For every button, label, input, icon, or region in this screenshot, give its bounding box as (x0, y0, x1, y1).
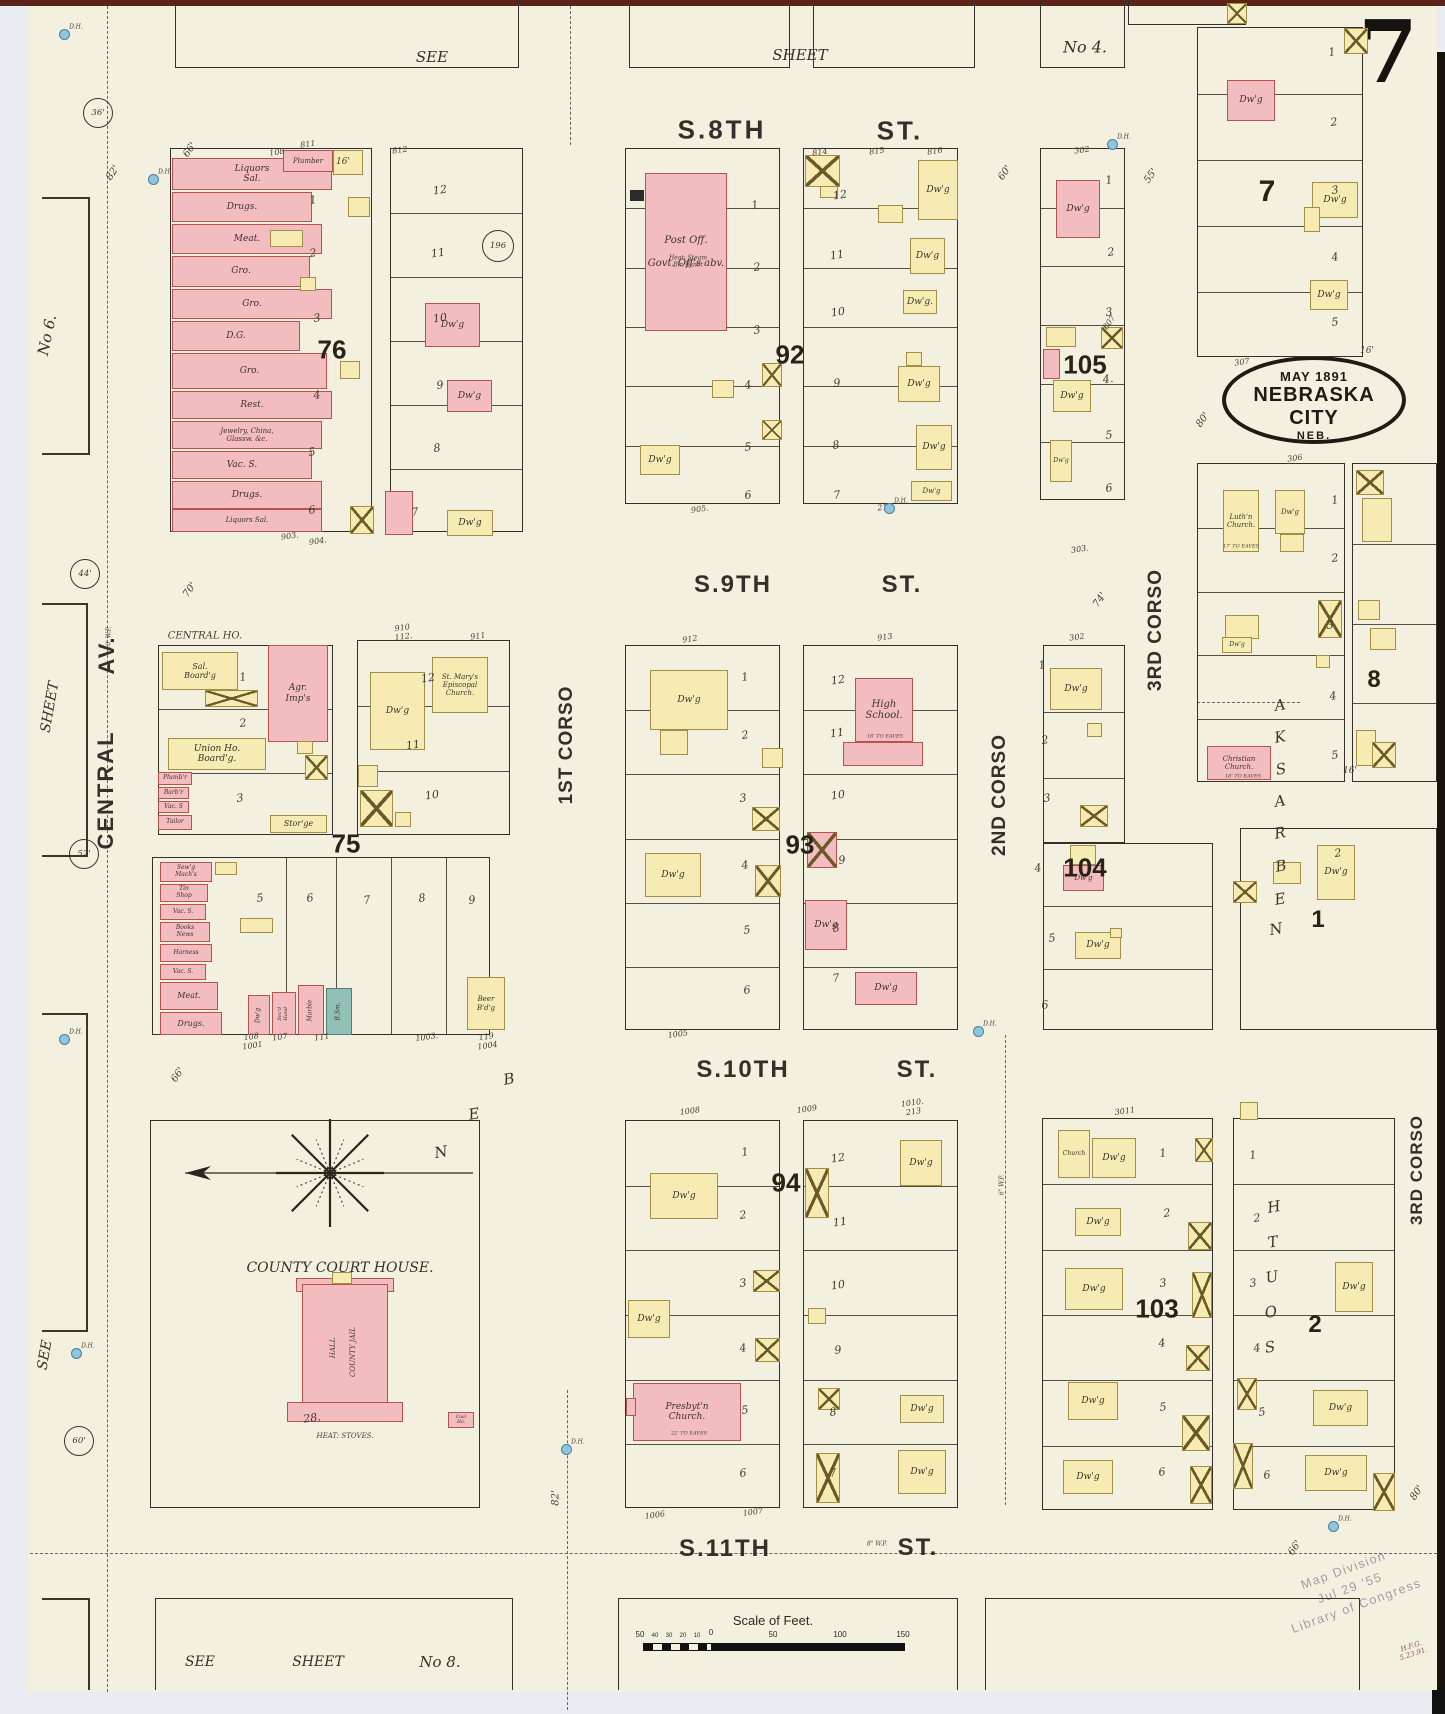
double-hydrant-label: D.H. (69, 25, 83, 32)
lot-line (1044, 969, 1212, 970)
building-label: Liquors Sal. (235, 164, 270, 185)
circled-dimension: 36' (83, 98, 113, 128)
building-label: Meat. (177, 991, 200, 1000)
building-shed (270, 230, 303, 247)
margin-block-line (42, 197, 88, 199)
building-jewelrychinaglasswc: Jewelry, China, Glassw. &c. (172, 421, 322, 449)
building-shed (240, 918, 273, 933)
sanborn-map-sheet: 7 MAY 1891 NEBRASKA CITY NEB. Map Divisi… (0, 0, 1445, 1714)
building-dwg: Dw'g (1063, 1460, 1113, 1494)
lot-number: 11 (405, 738, 421, 753)
building-label: Drugs. (232, 490, 263, 500)
building-dwg: Dw'g (898, 366, 940, 402)
street-label-see: SEE (185, 1654, 215, 1670)
street-label-see: SEE (416, 48, 448, 66)
annotation-6wp: 6" W.P. (1000, 1175, 1007, 1195)
annotation-16toeaves: 16' TO EAVES (867, 734, 903, 740)
building-dwg: Dw'g (1075, 1208, 1121, 1236)
double-hydrant-label: D.H. (894, 499, 908, 506)
annotation-heatstoves: HEAT: STOVES. (317, 1433, 374, 1441)
building-dwg: Dw'g (900, 1140, 942, 1186)
building-shed (1373, 1473, 1395, 1511)
building-label: Dw'g (1239, 95, 1262, 105)
lot-line (626, 903, 779, 904)
building-label: Dw'g (1086, 940, 1109, 950)
street-label-3rdcorso: 3RD CORSO (1145, 569, 1167, 691)
lot-line (391, 277, 522, 278)
street-label-st: ST. (877, 116, 924, 147)
building-liquorssal: Liquors Sal. (172, 509, 322, 532)
building-label: Gro. (242, 299, 262, 309)
lot-line (391, 213, 522, 214)
building-shed (1080, 805, 1108, 827)
street-label-s11th: S.11TH (679, 1535, 771, 1563)
building-stmarysepiscopalchurch: St. Mary's Episcopal Church. (432, 657, 488, 713)
building-label: Dw'g (874, 983, 897, 993)
building-label: Dw'g (916, 251, 939, 261)
building-label: Liquors Sal. (226, 516, 269, 524)
annotation-910112: 910 112. (393, 623, 413, 643)
building-label: Vac. S. (227, 460, 258, 470)
building-dwg: Dw'g (1053, 380, 1091, 412)
building-shed (1304, 207, 1320, 232)
building-label: Tailor (166, 819, 183, 826)
building-label: Marble (308, 999, 315, 1021)
building-label: St. Mary's Episcopal Church. (442, 673, 478, 697)
building-label: Dw'g (1066, 204, 1089, 214)
building-shed (360, 790, 393, 827)
building-shed (1195, 1138, 1213, 1162)
building-shed (358, 765, 378, 787)
annotation-heatsteamblr: Heat: Steam Blr. Bsm't (669, 255, 707, 268)
building-shed (1188, 1222, 1212, 1250)
building-dwg: Dw'g (918, 160, 958, 220)
building-label: Dw'g (1086, 1217, 1109, 1227)
building-shed (305, 755, 328, 780)
building-shed (755, 865, 781, 897)
building-label: Sec'd Hand (278, 1007, 290, 1021)
building-label: Dw'g (1329, 1403, 1352, 1413)
lot-line (804, 1444, 957, 1445)
building-tailor: Tailor (158, 815, 192, 830)
annotation-centralho: CENTRAL HO. (168, 631, 242, 642)
double-hydrant-label: D.H. (158, 170, 172, 177)
margin-block-line (42, 1013, 86, 1015)
building-label: Dw'g (909, 1158, 932, 1168)
building-label: Drugs. (227, 202, 258, 212)
lot-line (1044, 778, 1124, 779)
building-shed (1240, 1102, 1258, 1120)
building-shed (1190, 1466, 1212, 1504)
building-shed (843, 742, 923, 766)
building-label: Gro. (231, 266, 251, 276)
building-shed (1370, 628, 1396, 650)
lot-line (626, 839, 779, 840)
street-label-3rdcorso: 3RD CORSO (1407, 1115, 1427, 1225)
building-gro: Gro. (172, 256, 310, 287)
building-dwg: Dw'g (1313, 1390, 1368, 1426)
annotation-22toeaves: 22' TO EAVES (671, 1431, 707, 1437)
lot-line (391, 858, 392, 1034)
building-shed (1358, 600, 1380, 620)
building-postoffgovtoffsabv: Post Off. Govt. Off's abv. (645, 173, 727, 331)
street-label-1stcorso: 1ST CORSO (556, 686, 578, 805)
annotation-18toeaves: 18' TO EAVES (1225, 774, 1261, 780)
building-label: Rest. (240, 400, 263, 410)
margin-block-line (88, 1598, 90, 1690)
annotation-16: 16' (1343, 767, 1357, 777)
building-gro: Gro. (172, 289, 332, 319)
lot-number: 11 (829, 248, 845, 263)
building-shed (1362, 498, 1392, 542)
building-vacs: Vac. S. (160, 904, 206, 920)
lot-number: 11 (829, 726, 845, 741)
annotation-17toeaves: 17' TO EAVES (1223, 544, 1259, 550)
building-dwg: Dw'g (650, 670, 728, 730)
lot-line (1234, 1250, 1394, 1251)
building-label: Dw'g (1342, 1282, 1365, 1292)
building-dwg: Dw'g (1068, 1382, 1118, 1420)
building-label: Vac. S. (173, 909, 193, 916)
block-number-8: 8 (1367, 666, 1380, 694)
building-shed (1182, 1415, 1210, 1451)
building-label: Dw'g (1060, 391, 1083, 401)
block-number-75: 75 (332, 829, 361, 860)
block-number-105: 105 (1063, 350, 1106, 381)
building-dwg: Dw'g (900, 1395, 944, 1423)
margin-block-line (86, 1013, 88, 1332)
street-letter-u: U (1264, 1267, 1280, 1287)
block-number-7: 7 (1259, 175, 1276, 209)
building-shed (1186, 1345, 1210, 1371)
building-dwg: Dw'g (1305, 1455, 1367, 1491)
building-shed (1372, 742, 1396, 768)
street-label-no8: No 8. (419, 1653, 460, 1671)
annotation-8wp: 8" W.P. (867, 1542, 887, 1549)
annotation-1010213: 1010. 213 (900, 1098, 925, 1119)
building-label: Jewelry, China, Glassw. &c. (220, 427, 273, 443)
building-booksnews: Books News (160, 922, 210, 942)
building-label: Dw'g (1317, 290, 1340, 300)
building-shed (906, 352, 922, 366)
building-label: Dw'g (1102, 1153, 1125, 1163)
building-label: Agr. Imp's (286, 683, 311, 704)
building-shed (762, 748, 783, 768)
building-label: Dw'g (1076, 1472, 1099, 1482)
building-vacs: Vac. S (158, 801, 189, 813)
building-label: Dw'g (1281, 508, 1299, 516)
building-rest: Rest. (172, 391, 332, 419)
lot-line (626, 1380, 779, 1381)
title-city: NEBRASKA CITY (1226, 384, 1402, 430)
building-drugs: Drugs. (160, 1012, 222, 1035)
lot-line (626, 774, 779, 775)
building-shed (1344, 28, 1368, 54)
building-shed (808, 1308, 826, 1324)
annotation-16: 16' (336, 158, 350, 168)
building-shed (1280, 534, 1304, 552)
building-label: Dw'g. (907, 297, 933, 307)
building-dwg: Dw'g (1092, 1138, 1136, 1178)
street-label-av: AV. (94, 635, 120, 674)
street-centerline (567, 1390, 568, 1710)
building-shed (1233, 881, 1257, 903)
building-bsm: B.Sm. (326, 988, 352, 1035)
block-outline (155, 1598, 513, 1690)
circled-dimension: 196 (482, 230, 514, 262)
building-dwg: Dw'g (650, 1173, 718, 1219)
building-dwg: Dw'g (1275, 490, 1305, 534)
street-label-st: ST. (898, 1534, 939, 1562)
building-dwg: Dw'g (898, 1450, 946, 1494)
building-label: Dw'g (1082, 1284, 1105, 1294)
street-label-central: CENTRAL (93, 730, 119, 849)
building-dwg: Dw'g (447, 510, 493, 536)
lot-line (626, 967, 779, 968)
lot-line (804, 327, 957, 328)
building-shed (762, 420, 782, 440)
lot-number: 10 (424, 788, 440, 803)
lot-number: 11 (430, 246, 446, 261)
street-label-sheet: SHEET (292, 1654, 344, 1670)
annotation-hall: HALL (330, 1338, 338, 1358)
building-shed (1110, 928, 1122, 938)
building-shed (805, 1168, 829, 1218)
block-outline (813, 0, 975, 68)
building-label: Dw'g (1324, 1468, 1347, 1478)
building-label: Dw'g (1081, 1396, 1104, 1406)
street-label-st: ST. (882, 571, 923, 599)
annotation-82: 82' (551, 1490, 562, 1505)
building-label: Dw'g (677, 695, 700, 705)
building-dwg: Dw'g (855, 972, 917, 1005)
building-label: Dw'g (648, 455, 671, 465)
lot-line (1198, 592, 1344, 593)
building-vacs: Vac. S. (172, 451, 312, 479)
building-shed (805, 155, 840, 187)
lot-line (1234, 1446, 1394, 1447)
circled-dimension: 60' (64, 1426, 94, 1456)
building-label: D.G. (226, 331, 246, 341)
building-shed (350, 506, 374, 534)
building-dwg: Dw'g (1050, 668, 1102, 710)
margin-block-line (88, 197, 90, 455)
building-label: Union Ho. Board'g. (194, 744, 240, 765)
block-outline (985, 1598, 1360, 1690)
lot-number: 12 (830, 1151, 846, 1166)
title-date: MAY 1891 (1226, 369, 1402, 384)
lot-line (804, 1380, 957, 1381)
lot-line (1198, 719, 1344, 720)
building-drugs: Drugs. (172, 481, 322, 509)
building-agrimps: Agr. Imp's (268, 645, 328, 742)
building-salboardg: Sal. Board'g (162, 652, 238, 690)
building-dwg: Dw'g (911, 481, 952, 501)
building-dwg: Dw'g (1050, 440, 1072, 482)
building-sewgmachs: Sew'g Mach's (160, 862, 212, 882)
lot-line (446, 858, 447, 1034)
lot-line (804, 774, 957, 775)
building-vacs: Vac. S. (160, 964, 206, 980)
block-outline (175, 0, 519, 68)
building-dwg: Dw'g (640, 445, 680, 475)
lot-line (626, 386, 779, 387)
street-label-s8th: S.8TH (678, 115, 767, 146)
building-label: Dw'g (907, 379, 930, 389)
building-storge: Stor'ge (270, 815, 327, 833)
building-label: Dw'g (637, 1314, 660, 1324)
building-harness: Harness (160, 944, 212, 962)
building-dwg: Dw'g (645, 853, 701, 897)
street-label-s10th: S.10TH (696, 1056, 789, 1084)
building-tinshop: Tin Shop (160, 884, 208, 902)
annotation-16: 16' (1360, 347, 1374, 357)
double-hydrant-label: D.H. (983, 1022, 997, 1029)
block-number-1: 1 (1311, 906, 1324, 934)
building-label: Dw'g (1324, 867, 1347, 877)
street-label-s9th: S.9TH (694, 571, 772, 599)
margin-block-line (86, 603, 88, 857)
lot-number: 10 (830, 788, 846, 803)
lot-line (1043, 1250, 1212, 1251)
title-state: NEB. (1226, 430, 1402, 442)
building-beerbdg: Beer B'd'g (467, 977, 505, 1030)
building-shed (1356, 470, 1384, 495)
building-dwg: Dw'g (1222, 637, 1252, 653)
building-label: Vac. S. (173, 969, 193, 976)
street-centerline (570, 6, 571, 145)
building-shed (215, 862, 237, 875)
double-hydrant-label: D.H. (69, 1030, 83, 1037)
building-label: Gro. (240, 366, 260, 376)
street-label-sheet: SHEET (772, 46, 827, 64)
lot-line (626, 1444, 779, 1445)
building-dwg: Dw'g (1310, 280, 1348, 310)
lot-number: 12 (830, 673, 846, 688)
building-shed (302, 1284, 388, 1404)
building-dwg: Dw'g (628, 1300, 670, 1338)
building-label: Sew'g Mach's (175, 865, 197, 879)
building-shed (755, 1338, 780, 1362)
lot-number: 10 (830, 1278, 846, 1293)
lot-line (1353, 544, 1436, 545)
street-label-no4: No 4. (1063, 38, 1107, 57)
building-label: Sal. Board'g (184, 662, 216, 680)
building-gro: Gro. (172, 353, 327, 389)
lot-line (1234, 1380, 1394, 1381)
block-outline (618, 1598, 958, 1690)
building-plumber: Plumber (283, 150, 333, 172)
building-label: Dw'g (672, 1191, 695, 1201)
building-label: Christian Church. (1223, 755, 1256, 771)
building-shed (1101, 327, 1123, 349)
building-label: Meat. (234, 234, 260, 244)
lot-line (626, 1250, 779, 1251)
double-hydrant-label: D.H. (1338, 1517, 1352, 1524)
building-shed (1087, 723, 1102, 737)
building-shed (205, 690, 258, 707)
building-dg: D.G. (172, 321, 300, 351)
lot-number: 10 (830, 305, 846, 320)
building-shed (1043, 349, 1060, 379)
building-shed (1316, 655, 1330, 668)
building-label: Plumber (293, 157, 323, 165)
lot-line (1043, 1184, 1212, 1185)
lot-number: 11 (832, 1215, 848, 1230)
building-label: Harness (173, 950, 198, 957)
building-unionhoboardg: Union Ho. Board'g. (168, 738, 266, 770)
block-number-93: 93 (786, 830, 815, 861)
building-marble: Marble (298, 985, 324, 1035)
lot-line (1353, 703, 1436, 704)
double-hydrant-label: D.H. (571, 1440, 585, 1447)
lot-line (1353, 624, 1436, 625)
building-dwg: Dw'g (916, 425, 952, 470)
building-label: Dw'g (910, 1404, 933, 1414)
lot-line (1043, 1315, 1212, 1316)
building-label: Dw'g (922, 487, 940, 495)
building-shed (297, 741, 313, 754)
lot-line (804, 967, 957, 968)
building-dwg: Dw'g (248, 995, 270, 1035)
building-label: Dw'g (1229, 642, 1244, 649)
building-meat: Meat. (160, 982, 218, 1010)
building-label: Coal Ho. (456, 1415, 466, 1425)
building-shed (395, 812, 411, 827)
building-label: Vac. S (164, 804, 183, 811)
building-label: Tin Shop (176, 886, 191, 900)
building-shed (752, 807, 780, 831)
building-shed (348, 197, 370, 217)
lot-line (1198, 528, 1344, 529)
street-centerline (1005, 1035, 1006, 1505)
building-label: Dw'g (910, 1467, 933, 1477)
lot-number: 28. (302, 1410, 321, 1425)
building-label: Dw'g (1053, 458, 1068, 465)
building-shed (712, 380, 734, 398)
building-shed (385, 491, 413, 535)
building-shed (1227, 3, 1247, 24)
building-label: Beer B'd'g (477, 995, 495, 1011)
block-outline (629, 0, 790, 68)
building-label: Dw'g (458, 518, 481, 528)
double-hydrant-label: D.H. (1117, 135, 1131, 142)
margin-block-line (42, 1330, 86, 1332)
building-shed (1046, 327, 1076, 347)
building-shed (753, 1270, 780, 1292)
lot-line (1198, 160, 1362, 161)
building-dwg: Dw'g (805, 900, 847, 950)
building-barbr: Barb'r (158, 787, 189, 799)
margin-block-line (42, 1598, 88, 1600)
block-number-92: 92 (776, 340, 805, 371)
street-label-countycourthouse: COUNTY COURT HOUSE. (246, 1260, 433, 1276)
building-shed (1237, 1378, 1257, 1410)
annotation-1191004: 119 1004 (476, 1032, 499, 1052)
building-dwg: Dw'g (910, 238, 945, 274)
lot-line (358, 771, 509, 772)
building-label: Dw'g (922, 442, 945, 452)
building-coalho: Coal Ho. (448, 1412, 474, 1428)
block-number-104: 104 (1063, 853, 1106, 884)
lot-line (391, 469, 522, 470)
lot-number: 12 (420, 671, 436, 686)
building-dwg: Dw'g (447, 380, 492, 412)
building-dwg: Dw'g (1335, 1262, 1373, 1312)
block-number-103: 103 (1135, 1294, 1178, 1325)
double-hydrant-label: D.H. (81, 1344, 95, 1351)
lot-line (804, 1250, 957, 1251)
